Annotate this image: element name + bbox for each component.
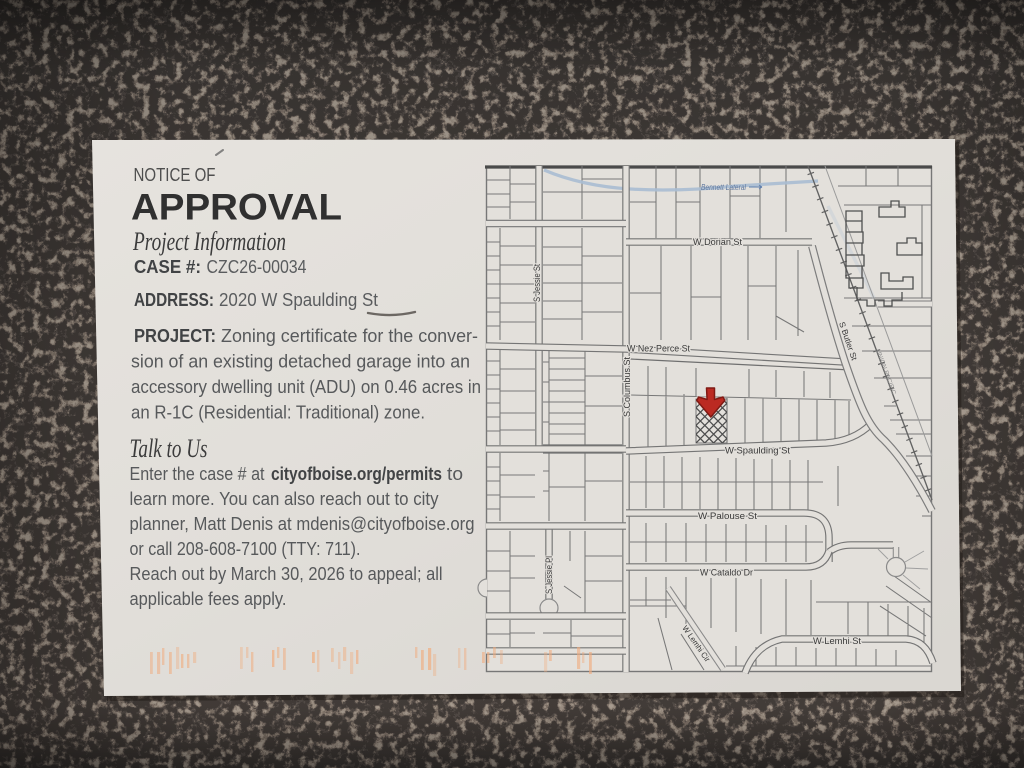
svg-text:or call 208-608-7100 (TTY: 711: or call 208-608-7100 (TTY: 711).	[130, 538, 361, 559]
svg-text:planner, Matt Denis at mdenis@: planner, Matt Denis at mdenis@cityofbois…	[130, 513, 475, 534]
svg-text:Talk to Us: Talk to Us	[130, 433, 208, 463]
svg-text:cityofboise.org/permits: cityofboise.org/permits	[271, 463, 442, 484]
svg-text:W Dorian St: W Dorian St	[693, 237, 743, 247]
svg-text:CZC26-00034: CZC26-00034	[207, 256, 307, 277]
svg-text:NOTICE OF: NOTICE OF	[134, 165, 216, 185]
svg-text:W Nez Perce St: W Nez Perce St	[627, 344, 690, 354]
svg-text:learn more. You can also reach: learn more. You can also reach out to ci…	[130, 488, 440, 509]
svg-text:S Jessie St: S Jessie St	[532, 264, 542, 302]
svg-text:W Lemhi St: W Lemhi St	[813, 636, 862, 646]
svg-text:W Palouse St: W Palouse St	[698, 511, 758, 521]
svg-text:sion of an existing detached g: sion of an existing detached garage into…	[131, 351, 470, 372]
svg-text:ADDRESS:: ADDRESS:	[134, 289, 214, 310]
svg-text:APPROVAL: APPROVAL	[131, 187, 342, 228]
svg-text:Project Information: Project Information	[132, 226, 286, 256]
svg-text:Zoning certificate for the con: Zoning certificate for the conver-	[221, 325, 478, 346]
svg-text:S Jessie Pl: S Jessie Pl	[544, 556, 554, 594]
svg-text:CASE #:: CASE #:	[134, 256, 201, 277]
svg-text:an R-1C (Residential: Traditio: an R-1C (Residential: Traditional) zone.	[131, 402, 425, 423]
svg-text:applicable fees apply.: applicable fees apply.	[130, 588, 287, 609]
svg-text:Bennett Lateral: Bennett Lateral	[701, 183, 746, 192]
svg-text:Reach out by March 30, 2026 to: Reach out by March 30, 2026 to appeal; a…	[130, 563, 443, 584]
svg-text:W Cataldo Dr: W Cataldo Dr	[700, 568, 753, 578]
svg-text:Enter the case # at: Enter the case # at	[130, 463, 265, 484]
svg-text:to: to	[447, 463, 463, 484]
svg-text:2020 W Spaulding St: 2020 W Spaulding St	[219, 289, 378, 310]
svg-text:S Columbus St: S Columbus St	[622, 357, 632, 417]
svg-text:W Spaulding St: W Spaulding St	[725, 446, 790, 457]
svg-text:PROJECT:: PROJECT:	[134, 325, 216, 346]
svg-text:accessory dwelling unit (ADU): accessory dwelling unit (ADU) on 0.46 ac…	[131, 376, 481, 397]
